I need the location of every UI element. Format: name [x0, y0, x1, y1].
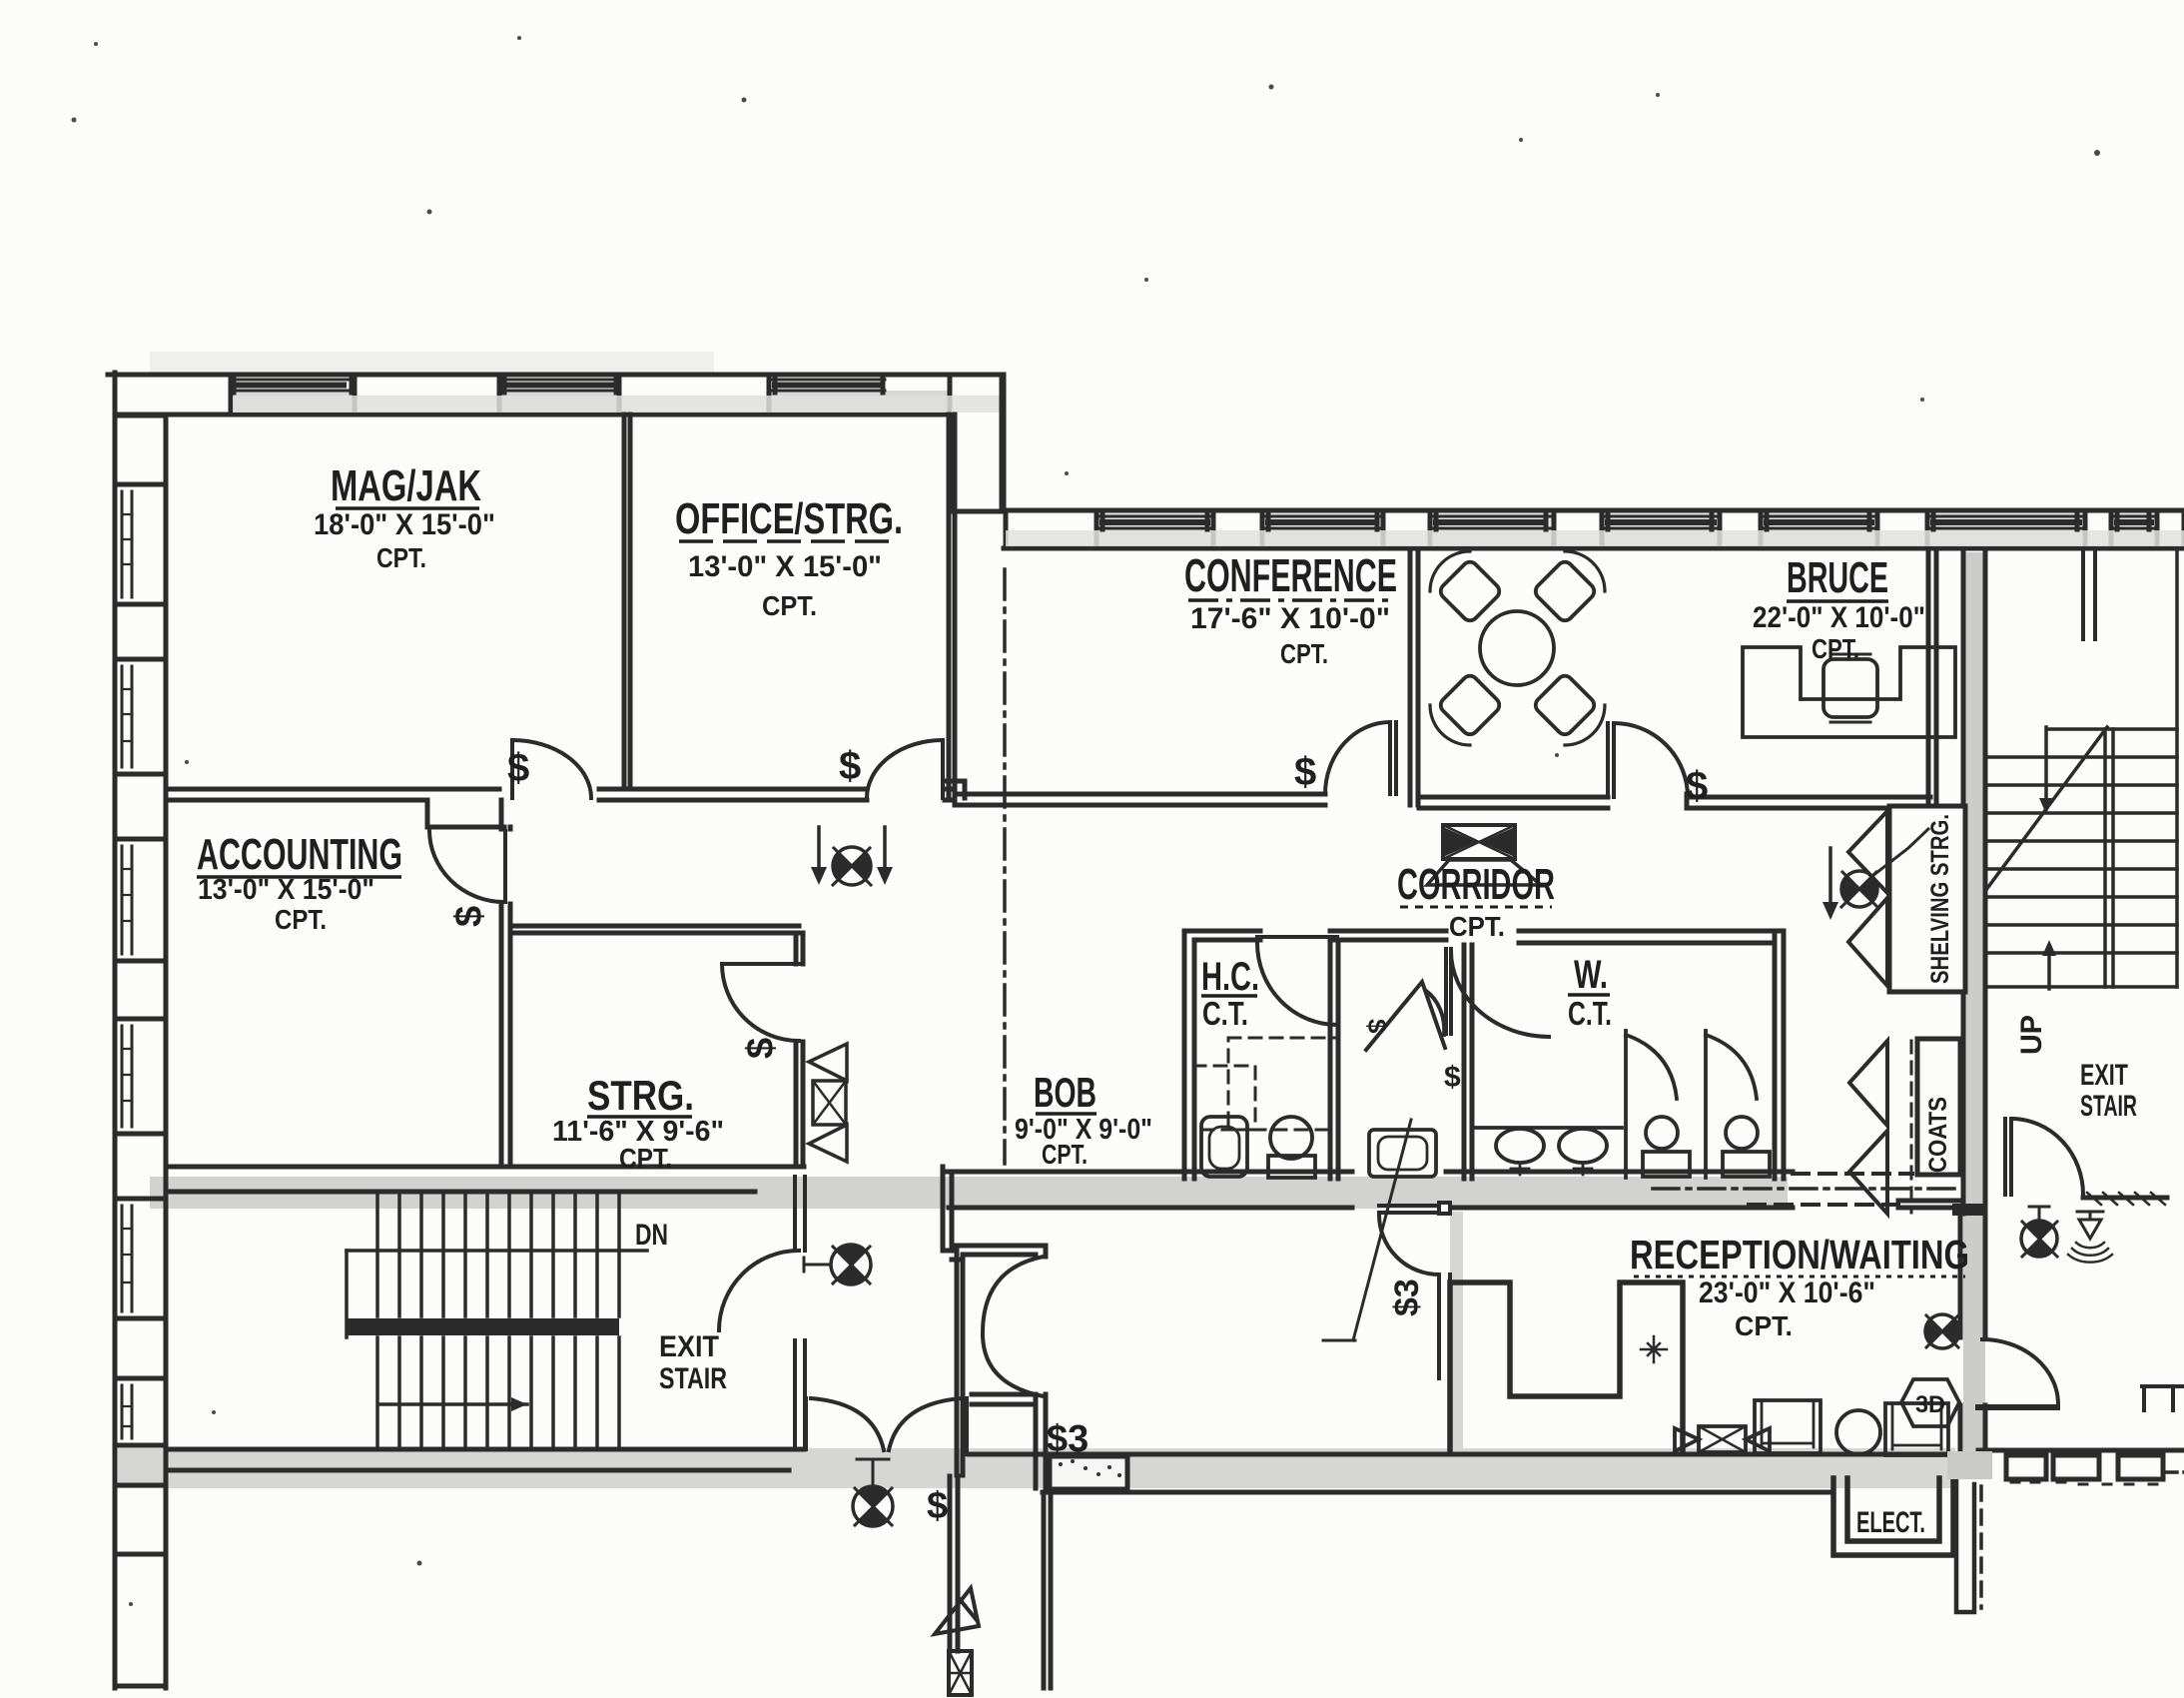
svg-text:W.: W. [1574, 953, 1608, 997]
svg-text:OFFICE/STRG.: OFFICE/STRG. [675, 494, 903, 543]
svg-text:COATS: COATS [1924, 1097, 1952, 1173]
svg-text:CORRIDOR: CORRIDOR [1397, 860, 1555, 909]
svg-text:CPT.: CPT. [1280, 638, 1328, 669]
svg-text:$: $ [839, 744, 861, 788]
svg-text:CONFERENCE: CONFERENCE [1184, 549, 1397, 601]
svg-text:STAIR: STAIR [2080, 1090, 2137, 1123]
svg-text:13'-0" X 15'-0": 13'-0" X 15'-0" [688, 550, 882, 583]
svg-text:C.T.: C.T. [1202, 995, 1248, 1032]
svg-text:CPT.: CPT. [619, 1143, 672, 1174]
svg-text:CPT.: CPT. [1042, 1139, 1088, 1170]
svg-text:BOB: BOB [1034, 1069, 1096, 1116]
svg-text:$: $ [927, 1485, 948, 1527]
svg-text:23'-0" X 10'-6": 23'-0" X 10'-6" [1699, 1276, 1875, 1309]
svg-text:RECEPTION/WAITING: RECEPTION/WAITING [1630, 1232, 1969, 1277]
svg-text:CPT.: CPT. [275, 904, 327, 935]
svg-text:3D: 3D [1915, 1391, 1945, 1418]
svg-text:C.T.: C.T. [1568, 995, 1612, 1032]
svg-text:$: $ [1444, 1061, 1461, 1094]
svg-text:STAIR: STAIR [659, 1362, 727, 1395]
svg-text:ELECT.: ELECT. [1856, 1506, 1925, 1539]
svg-text:$: $ [1686, 764, 1708, 808]
svg-text:CPT.: CPT. [1735, 1310, 1793, 1341]
svg-text:ACCOUNTING: ACCOUNTING [197, 830, 402, 879]
svg-text:22'-0" X 10'-0": 22'-0" X 10'-0" [1753, 601, 1925, 634]
svg-text:13'-0" X 15'-0": 13'-0" X 15'-0" [198, 874, 374, 906]
svg-text:CPT.: CPT. [762, 590, 817, 621]
svg-text:BRUCE: BRUCE [1787, 553, 1888, 602]
svg-text:$3: $3 [1388, 1278, 1426, 1316]
svg-text:18'-0" X 15'-0": 18'-0" X 15'-0" [314, 508, 495, 541]
svg-text:$: $ [1362, 1019, 1392, 1034]
svg-text:$: $ [740, 1038, 782, 1059]
svg-text:DN: DN [635, 1219, 668, 1252]
svg-text:$: $ [1294, 750, 1316, 794]
svg-text:STRG.: STRG. [587, 1072, 694, 1119]
svg-text:17'-6" X 10'-0": 17'-6" X 10'-0" [1190, 602, 1390, 635]
svg-text:$3: $3 [1047, 1418, 1089, 1460]
svg-text:EXIT: EXIT [2080, 1059, 2128, 1092]
svg-text:$: $ [448, 906, 490, 927]
svg-text:CPT.: CPT. [1449, 911, 1505, 942]
svg-text:MAG/JAK: MAG/JAK [331, 461, 481, 510]
svg-text:UP: UP [2015, 1015, 2048, 1055]
svg-text:CPT.: CPT. [376, 542, 426, 573]
svg-text:CPT.: CPT. [1812, 633, 1859, 664]
svg-text:$: $ [507, 746, 529, 790]
svg-text:H.C.: H.C. [1201, 955, 1259, 999]
svg-text:EXIT: EXIT [659, 1330, 719, 1363]
svg-text:SHELVING STRG.: SHELVING STRG. [1926, 814, 1954, 984]
